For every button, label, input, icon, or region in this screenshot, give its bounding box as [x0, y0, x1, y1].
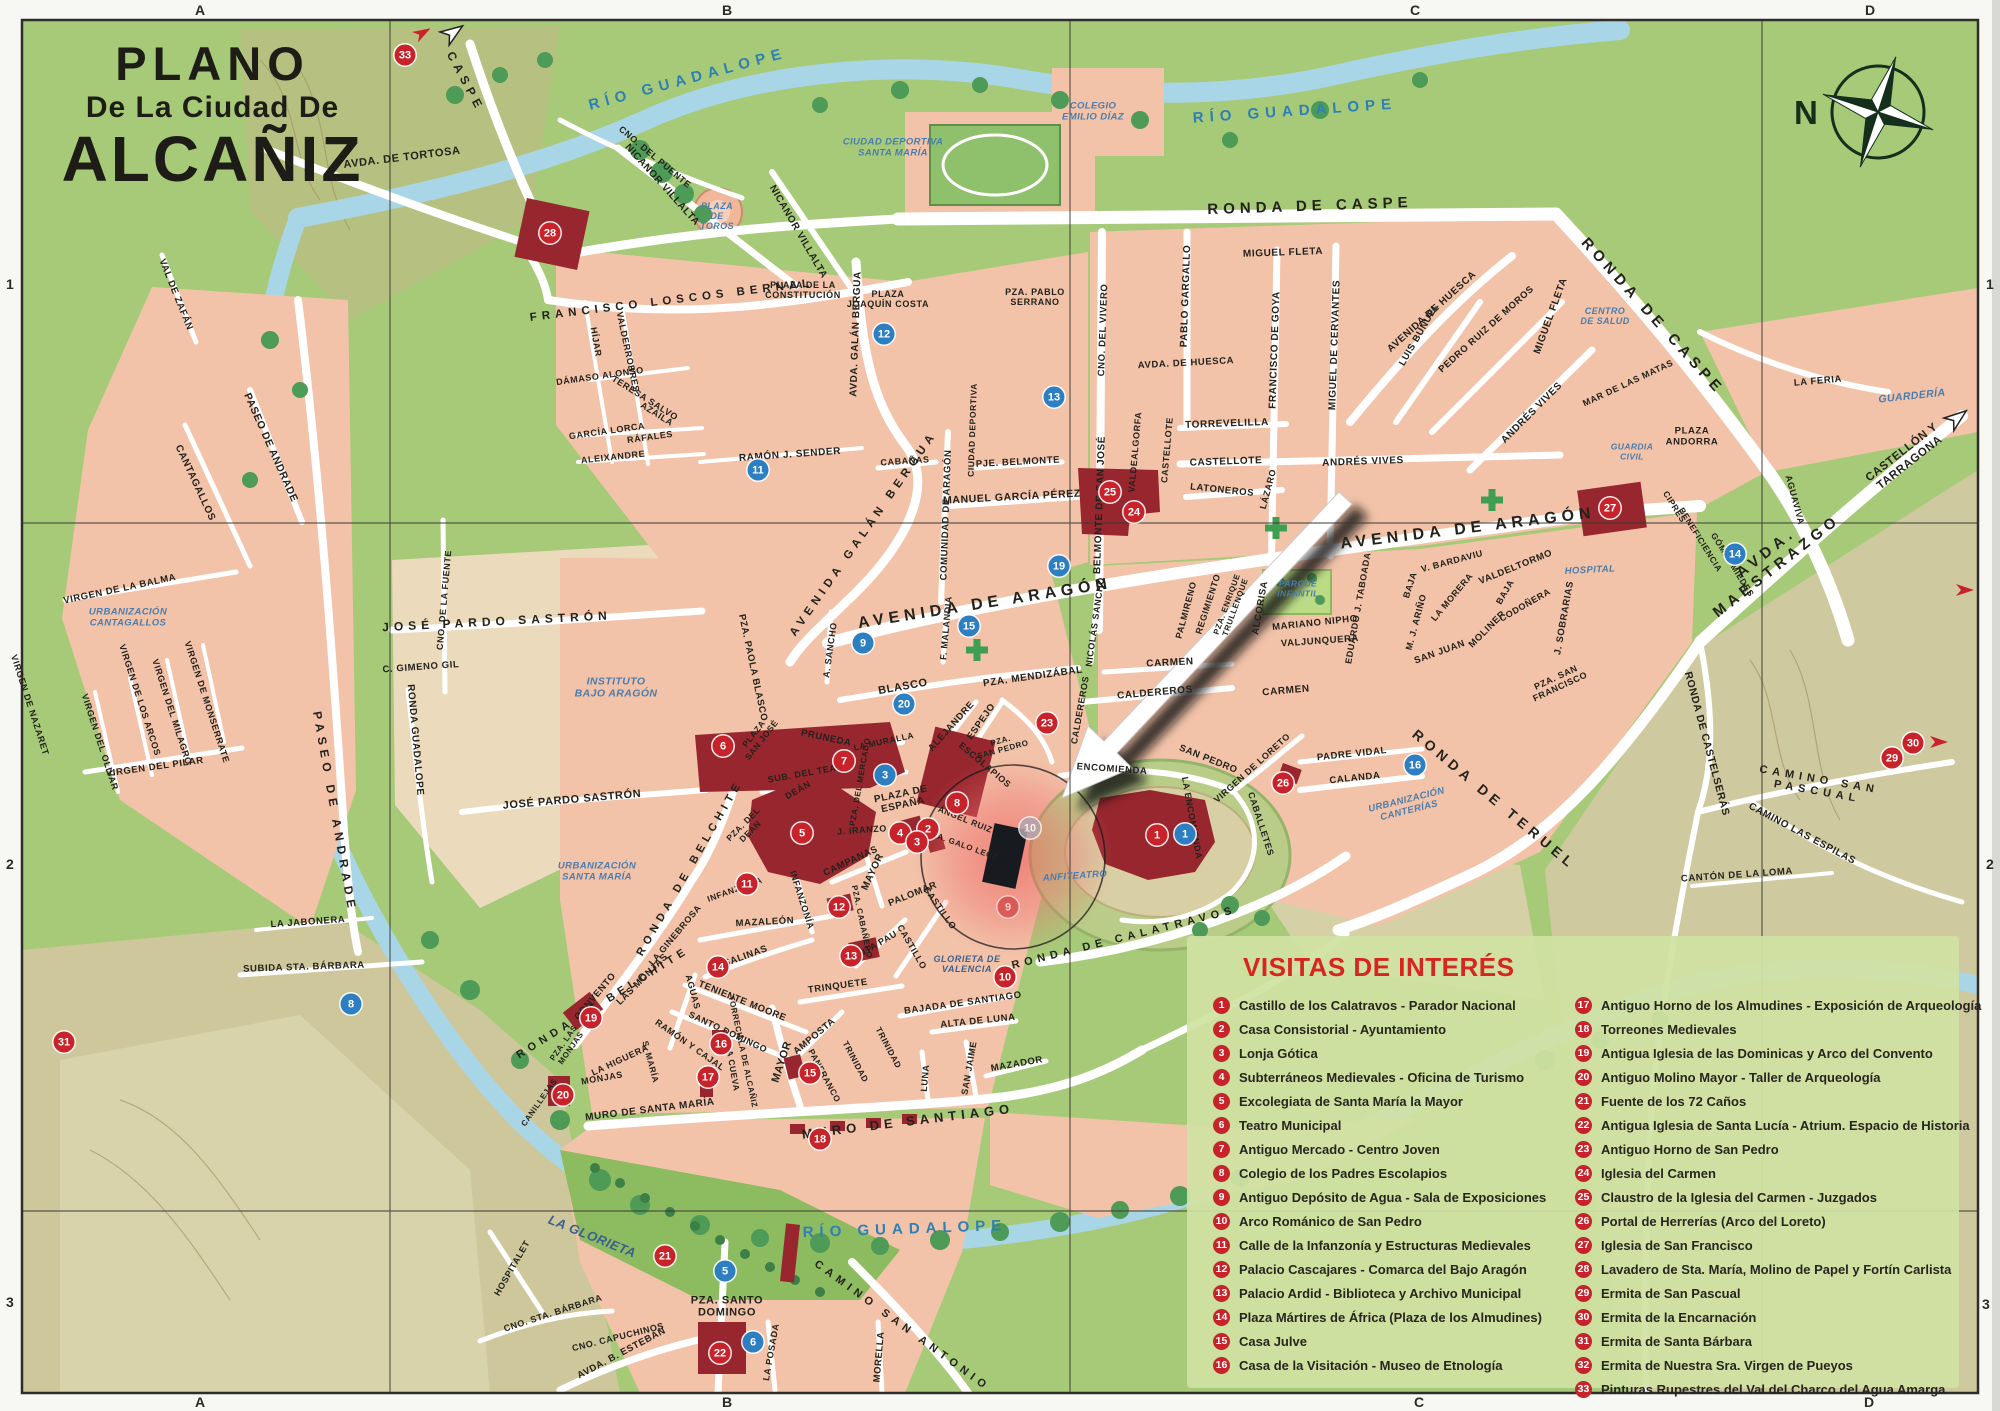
legend-item-label: Calle de la Infanzonía y Estructuras Med…: [1239, 1238, 1531, 1253]
legend-item-number: 1: [1213, 997, 1230, 1014]
legend-item-label: Teatro Municipal: [1239, 1118, 1341, 1133]
legend-item-number: 8: [1213, 1165, 1230, 1182]
scanned-city-map-page: RONDA DE CASPERONDA DE CASPEAVENIDA DE A…: [0, 0, 2000, 1411]
grid-col-top-b: B: [722, 2, 732, 18]
legend-item-19: 19Antigua Iglesia de las Dominicas y Arc…: [1575, 1041, 1981, 1065]
legend-item-number: 9: [1213, 1189, 1230, 1206]
legend-item-12: 12Palacio Cascajares - Comarca del Bajo …: [1213, 1257, 1575, 1281]
legend-item-number: 29: [1575, 1285, 1592, 1302]
legend-item-label: Ermita de Santa Bárbara: [1601, 1334, 1752, 1349]
legend-item-label: Ermita de Nuestra Sra. Virgen de Pueyos: [1601, 1358, 1853, 1373]
legend-item-number: 14: [1213, 1309, 1230, 1326]
map-title-line2: De La Ciudad De: [60, 93, 365, 124]
legend-item-label: Colegio de los Padres Escolapios: [1239, 1166, 1447, 1181]
legend-item-label: Pinturas Rupestres del Val del Charco de…: [1601, 1382, 1945, 1397]
legend-item-number: 24: [1575, 1165, 1592, 1182]
legend-item-number: 23: [1575, 1141, 1592, 1158]
legend-item-number: 15: [1213, 1333, 1230, 1350]
legend-item-number: 25: [1575, 1189, 1592, 1206]
legend-item-14: 14Plaza Mártires de África (Plaza de los…: [1213, 1305, 1575, 1329]
legend-item-18: 18Torreones Medievales: [1575, 1017, 1981, 1041]
legend-item-label: Plaza Mártires de África (Plaza de los A…: [1239, 1310, 1542, 1325]
legend-item-33: 33Pinturas Rupestres del Val del Charco …: [1575, 1377, 1981, 1401]
legend-item-number: 27: [1575, 1237, 1592, 1254]
grid-row-right-2: 2: [1986, 856, 1994, 872]
legend-item-number: 12: [1213, 1261, 1230, 1278]
legend-panel: VISITAS DE INTERÉS 1Castillo de los Cala…: [1187, 936, 1959, 1388]
legend-item-number: 21: [1575, 1093, 1592, 1110]
legend-item-label: Claustro de la Iglesia del Carmen - Juzg…: [1601, 1190, 1877, 1205]
map-title-line3: ALCAÑIZ: [60, 127, 365, 192]
grid-row-left-1: 1: [6, 276, 14, 292]
grid-row-left-2: 2: [6, 856, 14, 872]
legend-item-number: 16: [1213, 1357, 1230, 1374]
legend-item-number: 33: [1575, 1381, 1592, 1398]
legend-item-label: Iglesia del Carmen: [1601, 1166, 1716, 1181]
legend-item-label: Lavadero de Sta. María, Molino de Papel …: [1601, 1262, 1951, 1277]
legend-item-label: Iglesia de San Francisco: [1601, 1238, 1753, 1253]
legend-item-21: 21Fuente de los 72 Caños: [1575, 1089, 1981, 1113]
legend-item-22: 22Antigua Iglesia de Santa Lucía - Atriu…: [1575, 1113, 1981, 1137]
legend-item-number: 19: [1575, 1045, 1592, 1062]
legend-item-29: 29Ermita de San Pascual: [1575, 1281, 1981, 1305]
legend-item-number: 5: [1213, 1093, 1230, 1110]
legend-item-number: 30: [1575, 1309, 1592, 1326]
legend-item-25: 25Claustro de la Iglesia del Carmen - Ju…: [1575, 1185, 1981, 1209]
legend-item-label: Antigua Iglesia de Santa Lucía - Atrium.…: [1601, 1118, 1970, 1133]
legend-item-9: 9Antiguo Depósito de Agua - Sala de Expo…: [1213, 1185, 1575, 1209]
legend-item-3: 3Lonja Gótica: [1213, 1041, 1575, 1065]
legend-item-32: 32Ermita de Nuestra Sra. Virgen de Pueyo…: [1575, 1353, 1981, 1377]
legend-item-label: Excolegiata de Santa María la Mayor: [1239, 1094, 1463, 1109]
legend-item-7: 7Antiguo Mercado - Centro Joven: [1213, 1137, 1575, 1161]
legend-item-16: 16Casa de la Visitación - Museo de Etnol…: [1213, 1353, 1575, 1377]
legend-item-number: 28: [1575, 1261, 1592, 1278]
grid-row-right-1: 1: [1986, 276, 1994, 292]
grid-row-left-3: 3: [6, 1294, 14, 1310]
legend-item-label: Ermita de San Pascual: [1601, 1286, 1740, 1301]
legend-item-label: Casa Consistorial - Ayuntamiento: [1239, 1022, 1446, 1037]
legend-item-number: 22: [1575, 1117, 1592, 1134]
legend-item-label: Casa de la Visitación - Museo de Etnolog…: [1239, 1358, 1502, 1373]
legend-item-10: 10Arco Románico de San Pedro: [1213, 1209, 1575, 1233]
grid-col-top-a: A: [195, 2, 205, 18]
legend-column-1: 1Castillo de los Calatravos - Parador Na…: [1213, 993, 1575, 1401]
legend-item-number: 7: [1213, 1141, 1230, 1158]
legend-item-label: Subterráneos Medievales - Oficina de Tur…: [1239, 1070, 1524, 1085]
legend-item-23: 23Antiguo Horno de San Pedro: [1575, 1137, 1981, 1161]
legend-item-number: 17: [1575, 997, 1592, 1014]
grid-col-bottom-a: A: [195, 1394, 205, 1410]
legend-item-label: Arco Románico de San Pedro: [1239, 1214, 1422, 1229]
legend-item-label: Portal de Herrerías (Arco del Loreto): [1601, 1214, 1826, 1229]
legend-item-number: 10: [1213, 1213, 1230, 1230]
legend-item-30: 30Ermita de la Encarnación: [1575, 1305, 1981, 1329]
map-title: PLANO De La Ciudad De ALCAÑIZ: [60, 40, 365, 192]
legend-item-6: 6Teatro Municipal: [1213, 1113, 1575, 1137]
legend-item-label: Torreones Medievales: [1601, 1022, 1737, 1037]
legend-column-2: 17Antiguo Horno de los Almudines - Expos…: [1575, 993, 1981, 1401]
legend-item-number: 32: [1575, 1357, 1592, 1374]
legend-item-label: Ermita de la Encarnación: [1601, 1310, 1756, 1325]
legend-item-number: 20: [1575, 1069, 1592, 1086]
grid-col-top-d: D: [1865, 2, 1875, 18]
compass-north-label: N: [1794, 94, 1818, 132]
legend-item-label: Antigua Iglesia de las Dominicas y Arco …: [1601, 1046, 1933, 1061]
legend-item-4: 4Subterráneos Medievales - Oficina de Tu…: [1213, 1065, 1575, 1089]
grid-row-right-3: 3: [1982, 1296, 1990, 1312]
legend-item-27: 27Iglesia de San Francisco: [1575, 1233, 1981, 1257]
legend-item-20: 20Antiguo Molino Mayor - Taller de Arque…: [1575, 1065, 1981, 1089]
legend-item-8: 8Colegio de los Padres Escolapios: [1213, 1161, 1575, 1185]
legend-title: VISITAS DE INTERÉS: [1243, 952, 1945, 983]
legend-item-label: Fuente de los 72 Caños: [1601, 1094, 1746, 1109]
legend-item-label: Lonja Gótica: [1239, 1046, 1318, 1061]
legend-item-label: Antiguo Molino Mayor - Taller de Arqueol…: [1601, 1070, 1881, 1085]
legend-item-number: 13: [1213, 1285, 1230, 1302]
grid-col-bottom-b: B: [722, 1394, 732, 1410]
legend-item-2: 2Casa Consistorial - Ayuntamiento: [1213, 1017, 1575, 1041]
legend-item-number: 18: [1575, 1021, 1592, 1038]
legend-item-label: Antiguo Horno de San Pedro: [1601, 1142, 1779, 1157]
legend-item-label: Castillo de los Calatravos - Parador Nac…: [1239, 998, 1516, 1013]
legend-item-17: 17Antiguo Horno de los Almudines - Expos…: [1575, 993, 1981, 1017]
legend-item-number: 11: [1213, 1237, 1230, 1254]
legend-item-label: Casa Julve: [1239, 1334, 1307, 1349]
legend-item-label: Antiguo Depósito de Agua - Sala de Expos…: [1239, 1190, 1546, 1205]
legend-item-number: 3: [1213, 1045, 1230, 1062]
legend-item-24: 24Iglesia del Carmen: [1575, 1161, 1981, 1185]
legend-item-label: Antiguo Mercado - Centro Joven: [1239, 1142, 1440, 1157]
legend-item-number: 6: [1213, 1117, 1230, 1134]
legend-item-label: Antiguo Horno de los Almudines - Exposic…: [1601, 998, 1981, 1013]
legend-item-number: 26: [1575, 1213, 1592, 1230]
legend-item-number: 2: [1213, 1021, 1230, 1038]
map-title-line1: PLANO: [60, 40, 365, 88]
legend-item-number: 4: [1213, 1069, 1230, 1086]
legend-item-1: 1Castillo de los Calatravos - Parador Na…: [1213, 993, 1575, 1017]
legend-item-number: 31: [1575, 1333, 1592, 1350]
legend-item-31: 31Ermita de Santa Bárbara: [1575, 1329, 1981, 1353]
legend-item-28: 28Lavadero de Sta. María, Molino de Pape…: [1575, 1257, 1981, 1281]
legend-item-11: 11Calle de la Infanzonía y Estructuras M…: [1213, 1233, 1575, 1257]
legend-item-13: 13Palacio Ardid - Biblioteca y Archivo M…: [1213, 1281, 1575, 1305]
legend-item-15: 15Casa Julve: [1213, 1329, 1575, 1353]
legend-item-5: 5Excolegiata de Santa María la Mayor: [1213, 1089, 1575, 1113]
legend-item-label: Palacio Ardid - Biblioteca y Archivo Mun…: [1239, 1286, 1521, 1301]
grid-col-top-c: C: [1410, 2, 1420, 18]
legend-item-label: Palacio Cascajares - Comarca del Bajo Ar…: [1239, 1262, 1527, 1277]
legend-item-26: 26Portal de Herrerías (Arco del Loreto): [1575, 1209, 1981, 1233]
